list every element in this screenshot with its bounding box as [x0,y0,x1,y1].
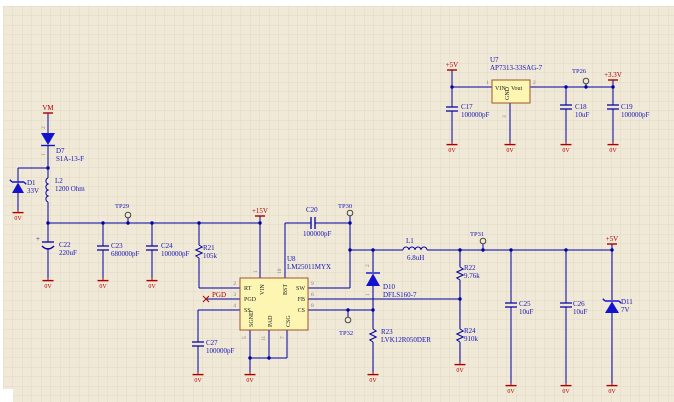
u7-pin-gnd: GND [505,86,511,100]
d7-ref: D7 [56,147,65,155]
c25-ref: C25 [519,300,531,308]
tp26-label: TP26 [572,68,587,75]
c27-val: 100000pF [206,347,235,355]
tp31-label: TP31 [470,231,484,238]
r22-val: 9.76k [464,272,480,280]
c26-val: 10uF [573,308,588,316]
net-label-vm: VM [42,104,54,112]
u8-pin-fb: FB [298,297,305,303]
pgd-label: PGD [212,291,226,299]
r24-val: 910k [464,335,479,343]
c18-val: 10uF [575,111,590,119]
schematic-editor-viewport: 0V VM +5V +3.3V +15V +5V [0,0,674,402]
u8-pin4-number: 4 [233,303,236,309]
u8-pin7-number: 7 [280,336,286,339]
sheet-corner [0,389,13,402]
test-point-pad [347,210,353,216]
c24-val: 100000pF [161,250,190,258]
r23-val: LVK12R050DER [381,336,431,344]
power-port-vm[interactable]: VM [42,104,54,113]
net-label-5v: +5V [446,61,459,69]
d7-val: S1A-13-F [56,155,84,163]
u8-pin-sgnd: SGND [249,310,255,327]
d7-pin2-number: 2 [41,126,47,129]
d10-pin1-number: 1 [365,293,371,296]
u7-pin3-number: 3 [502,115,508,118]
d10-ref: D10 [383,283,396,291]
u7-pin-vout: Vout [511,86,523,92]
c19-ref: C19 [621,103,633,111]
u8-pin-pad: PAD [268,315,274,327]
d1-val: 33V [27,187,39,195]
c22-val: 220uF [59,249,77,257]
u8-pin-cs: CS [298,308,305,314]
c27-ref: C27 [206,339,218,347]
test-point-pad [345,317,351,323]
power-port-3v3[interactable]: +3.3V [604,71,622,80]
r21-val: 105k [203,252,218,260]
u8-pin3-number: 3 [233,292,236,298]
r22-ref: R22 [464,264,476,272]
u8-pin-sw: SW [296,286,305,292]
c22-polarity-plus: + [36,235,40,243]
u7-pin2-number: 2 [533,80,536,86]
c22-ref: C22 [59,241,71,249]
u7-part: AP7313-33SAG-7 [490,64,543,72]
d11-ref: D11 [621,298,633,306]
u8-pin-rt: RT [244,286,252,292]
test-point-pad [480,238,486,244]
d7-pin1-number: 1 [41,153,47,156]
l2-ref: L2 [55,177,63,185]
tp30-label: TP30 [338,203,352,210]
u8-pin8-number: 8 [311,303,314,309]
d10-pin2-number: 2 [365,264,371,267]
c24-ref: C24 [161,242,173,250]
r23-ref: R23 [381,328,393,336]
power-port-15v[interactable]: +15V [252,207,268,216]
u7-pin1-number: 1 [486,80,489,86]
net-label-5v-out: +5V [606,235,619,243]
tp32-label: TP32 [339,330,353,337]
l1-val: 6.8uH [407,254,424,262]
power-port-5v-out[interactable]: +5V [606,235,619,244]
u8-pin-pgd: PGD [244,297,257,303]
u8-pin6-number: 6 [311,292,314,298]
c23-val: 680000pF [111,250,140,258]
u8-pin-vin: VIN [260,284,266,295]
r24-ref: R24 [464,327,476,335]
net-label-3v3: +3.3V [604,71,622,79]
c20-ref: C20 [306,206,318,214]
u8-pin11-number: 11 [261,335,267,341]
u8-pin5-number: 5 [242,336,248,339]
c25-val: 10uF [519,308,534,316]
c23-ref: C23 [111,242,123,250]
r21-ref: R21 [203,244,215,252]
test-point-pad [583,78,589,84]
c17-val: 100000pF [461,111,490,119]
u8-ref: U8 [287,255,296,263]
c17-ref: C17 [461,103,473,111]
l2-val: 1200 Ohm [55,185,85,193]
test-point-pad [125,212,131,218]
d11-val: 7V [621,306,630,314]
tp29-label: TP29 [115,203,129,210]
c19-val: 100000pF [621,111,650,119]
u8-part: LM25011MYX [287,263,331,271]
c26-ref: C26 [573,300,585,308]
u8-pin-bst: BST [283,284,289,295]
d10-val: DFLS160-7 [383,291,417,299]
u8-pin1-number: 1 [253,270,259,273]
u8-pin9-number: 9 [311,281,314,287]
c20-val: 100000pF [303,230,332,238]
l1-ref: L1 [406,237,414,245]
u7-ref: U7 [490,56,499,64]
power-port-5v-in[interactable]: +5V [446,61,459,70]
d1-ref: D1 [27,179,36,187]
u8-pin2-number: 2 [233,281,236,287]
u8-pin-csg: CSG [286,315,292,327]
u8-pin10-number: 10 [277,268,283,274]
net-label-15v: +15V [252,207,268,215]
c18-ref: C18 [575,103,587,111]
schematic-canvas: 0V VM +5V +3.3V +15V +5V [0,0,674,402]
